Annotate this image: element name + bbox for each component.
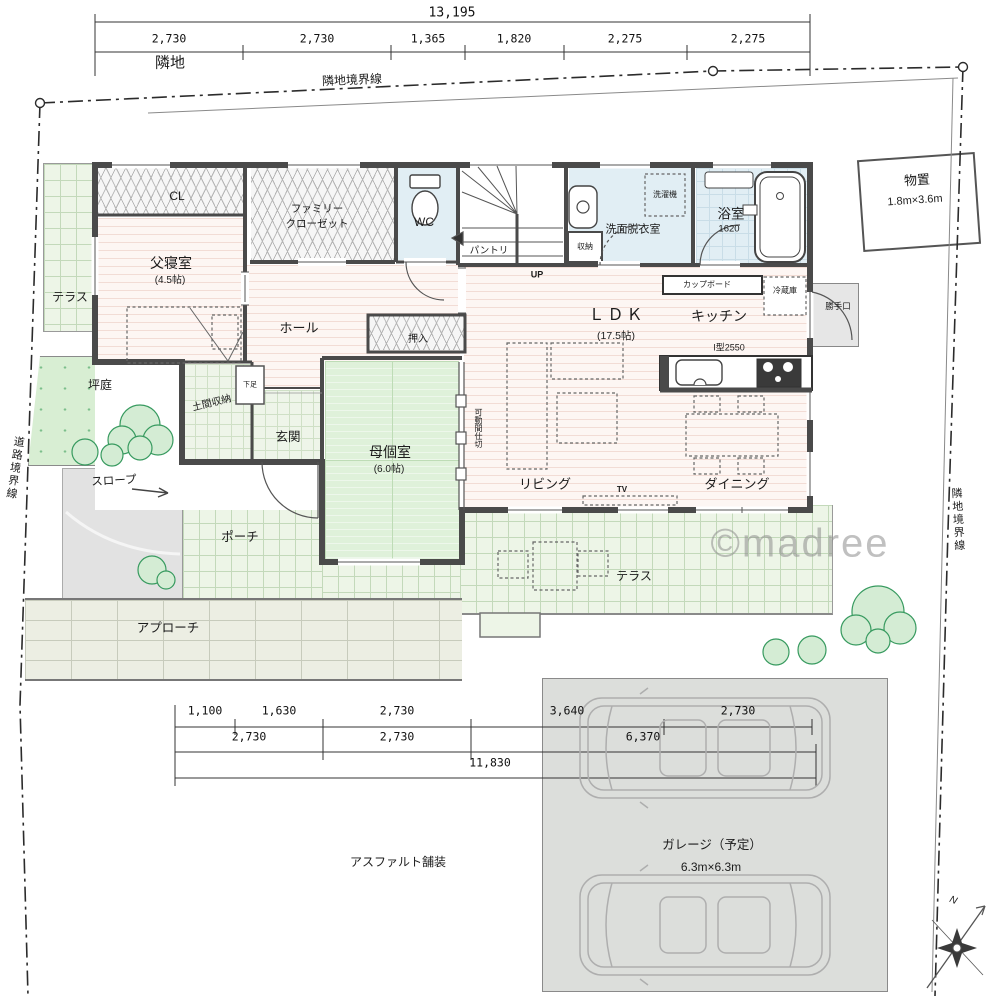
label-ldk: ＬＤＫ [588, 308, 645, 324]
label-family-closet-1: ファミリー [291, 204, 344, 215]
label-porch: ポーチ [221, 531, 259, 544]
dim-b2-3: 6,370 [626, 731, 661, 743]
label-father-size: (4.5帖) [155, 276, 186, 286]
dim-b1-4: 3,640 [550, 705, 585, 717]
label-partition: 可動間仕切 [474, 408, 482, 448]
label-wc: WC [414, 216, 434, 228]
dim-b3-1: 11,830 [469, 757, 511, 769]
dim-b1-3: 2,730 [380, 705, 415, 717]
label-ldk-size: (17.5帖) [597, 331, 635, 342]
dim-top-4: 1,820 [497, 33, 532, 45]
label-kitchen: キッチン [691, 309, 747, 323]
label-terrace-left: テラス [52, 291, 88, 303]
label-washroom: 洗面脱衣室 [606, 225, 661, 236]
label-approach: アプローチ [137, 622, 200, 635]
room-bath [696, 168, 808, 263]
label-dining: ダイニング [704, 478, 769, 491]
label-bath-size: 1620 [718, 224, 739, 234]
boundary-right-label: 隣地境界線 [950, 487, 964, 552]
label-bath: 浴室 [718, 207, 745, 221]
dim-top-5: 2,275 [608, 33, 643, 45]
dim-b1-2: 1,630 [262, 705, 297, 717]
label-garage: ガレージ（予定） [662, 839, 762, 852]
label-terrace-main: テラス [616, 570, 652, 582]
dim-top-1: 2,730 [152, 33, 187, 45]
dim-top-3: 1,365 [411, 33, 446, 45]
room-mother [325, 361, 459, 559]
label-shed: 物置 [904, 173, 931, 188]
room-father [98, 218, 243, 365]
label-geta: 下足 [243, 382, 257, 389]
terrace-left-area [43, 163, 97, 332]
label-oshiire: 押入 [408, 335, 428, 345]
boundary-top-label: 隣地境界線 [322, 73, 382, 88]
label-hall: ホール [279, 322, 318, 335]
label-washer: 洗濯機 [653, 191, 677, 199]
label-tsuboniwa: 坪庭 [88, 379, 112, 391]
label-mother-size: (6.0帖) [374, 465, 405, 475]
label-slope: スロープ [91, 475, 137, 489]
label-kitchen-unit: I型2550 [713, 344, 745, 353]
garage-area [542, 678, 888, 992]
dim-b1-1: 1,100 [188, 705, 223, 717]
approach-area [25, 598, 462, 681]
room-genkan [253, 390, 321, 461]
south-strip-area [322, 560, 462, 598]
room-ldk [464, 267, 808, 508]
room-hall-lower [250, 361, 322, 387]
compass-n-label: N [948, 895, 958, 907]
label-cupboard: カップボード [683, 281, 731, 289]
floor-plan-canvas: 13,195 2,730 2,730 1,365 1,820 2,275 2,2… [0, 0, 1000, 1000]
label-pantry: パントリ [470, 246, 508, 256]
dim-total-top: 13,195 [429, 7, 476, 20]
label-tv: TV [617, 486, 627, 494]
label-shuno: 収納 [577, 243, 593, 251]
label-father-room: 父寝室 [150, 256, 192, 270]
dim-top-2: 2,730 [300, 33, 335, 45]
label-asphalt: アスファルト舗装 [350, 856, 446, 868]
label-living: リビング [519, 478, 571, 491]
label-up: UP [531, 271, 544, 280]
label-cl: CL [169, 190, 184, 202]
label-mother-room: 母個室 [369, 445, 411, 459]
dim-top-6: 2,275 [731, 33, 766, 45]
dim-b1-5: 2,730 [721, 705, 756, 717]
label-fridge: 冷蔵庫 [773, 287, 797, 295]
backdoor-step [810, 283, 859, 347]
dim-b2-1: 2,730 [232, 731, 267, 743]
boundary-road-label: 道路境界線 [4, 435, 24, 501]
label-garage-size: 6.3m×6.3m [681, 861, 741, 873]
label-family-closet-2: クローゼット [286, 219, 349, 230]
watermark: ©madree [710, 522, 889, 567]
neighbor-label: 隣地 [155, 56, 185, 71]
dim-b2-2: 2,730 [380, 731, 415, 743]
room-wc [398, 168, 456, 260]
label-genkan: 玄関 [275, 431, 300, 444]
label-backdoor: 勝手口 [825, 302, 851, 311]
